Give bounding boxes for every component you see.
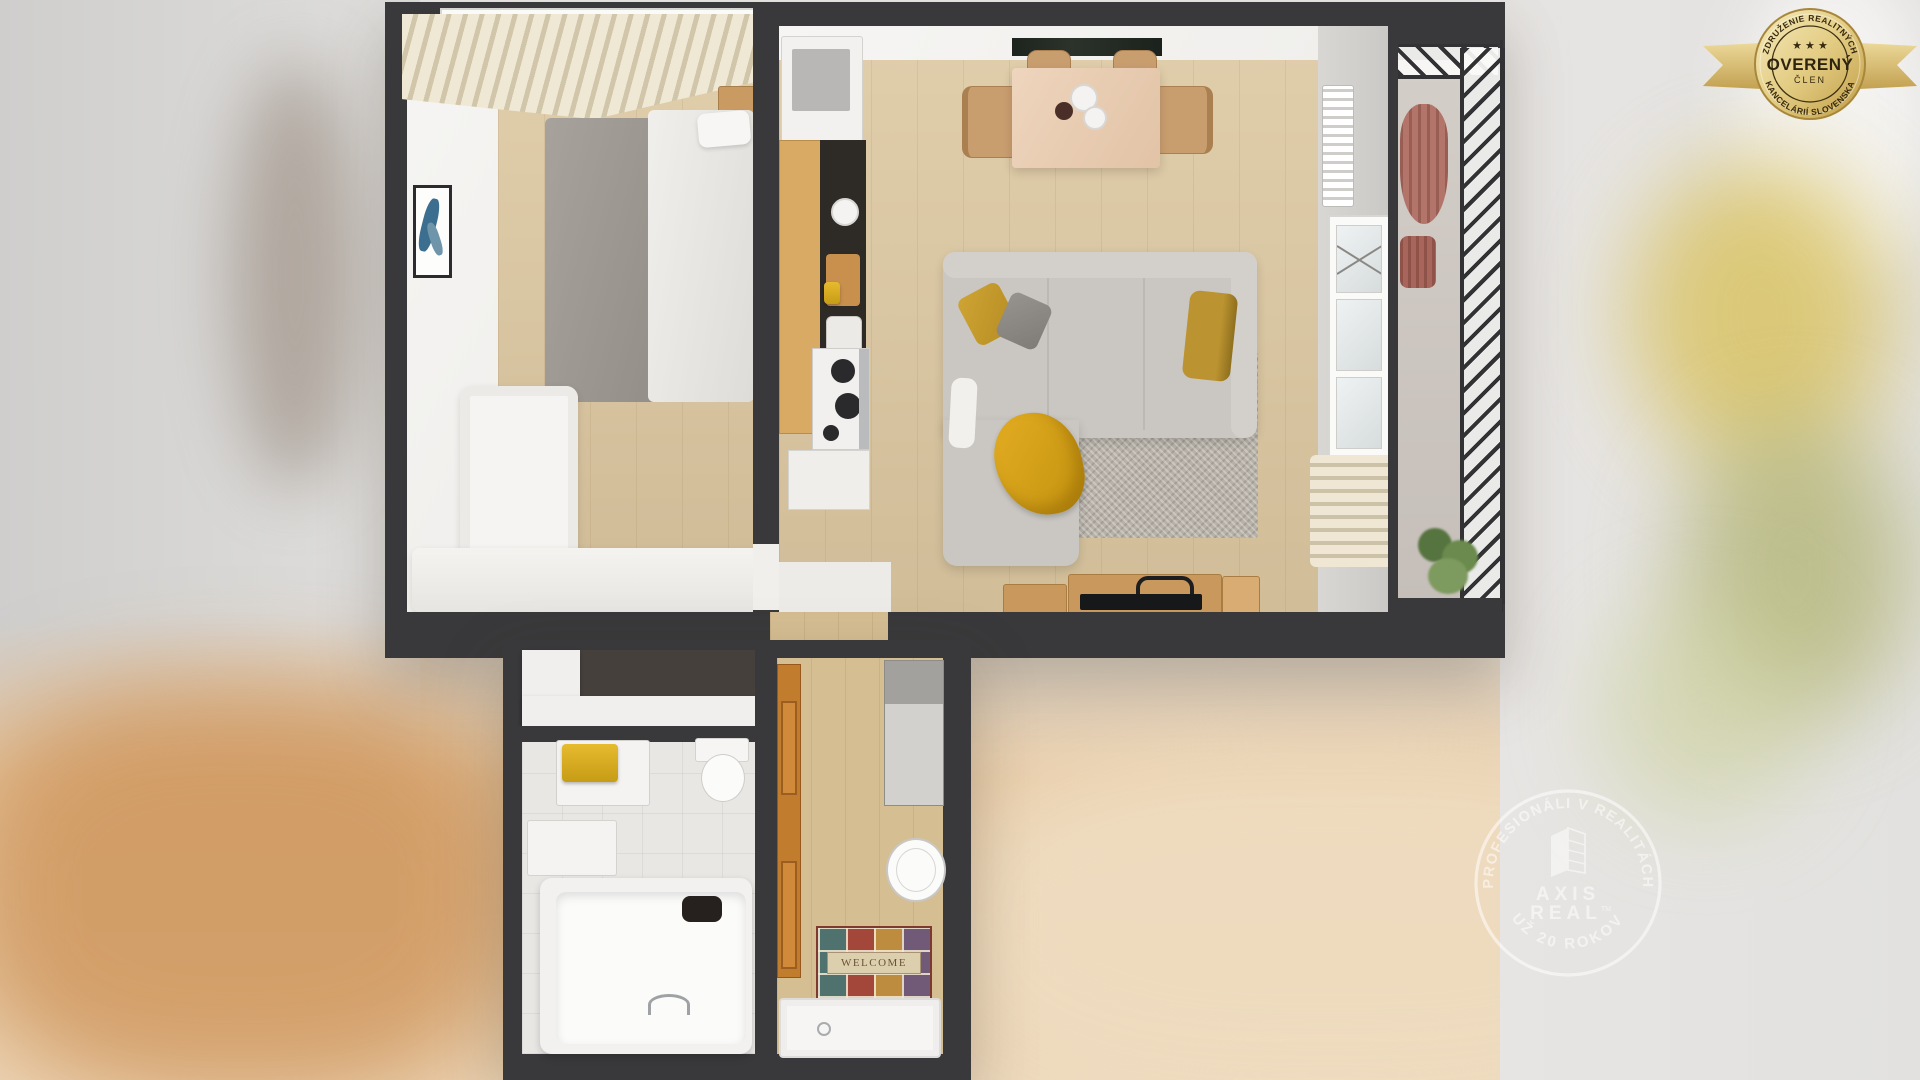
bed-duvet-gray xyxy=(545,118,659,402)
floorplan-scene: WELCOME ZDRUŽENIE REALITNÝCH ★ ★ ★ OVERE… xyxy=(0,0,1920,1080)
watermark-brand-2: REAL xyxy=(1530,903,1602,924)
washbasin xyxy=(886,838,946,902)
bed-duvet-white xyxy=(648,110,754,402)
fridge xyxy=(781,36,863,142)
balcony-rail-line xyxy=(1500,40,1503,614)
dining-chair xyxy=(1152,86,1213,154)
hall-doorway-threshold xyxy=(779,562,891,612)
wall-picture xyxy=(413,185,452,278)
closet-shelf xyxy=(522,696,755,730)
stove xyxy=(812,348,870,450)
balcony-chair xyxy=(1400,236,1436,288)
yellow-towel xyxy=(562,744,618,782)
doormat-text: WELCOME xyxy=(827,952,921,974)
balcony-railing xyxy=(1460,48,1505,604)
divider-wall xyxy=(753,2,779,614)
kitchen-towel xyxy=(824,282,840,304)
tv-bracket xyxy=(1136,576,1194,596)
badge-stars: ★ ★ ★ xyxy=(1792,40,1828,52)
watermark-brand-1: AXIS xyxy=(1536,884,1600,905)
verified-member-badge: ZDRUŽENIE REALITNÝCH ★ ★ ★ OVERENÝ ČLEN … xyxy=(1695,2,1920,128)
living-radiator xyxy=(1322,85,1354,207)
background-plant-blur xyxy=(1630,160,1890,470)
background-furniture-blur xyxy=(230,60,360,490)
doormat: WELCOME xyxy=(816,926,932,1000)
watermark-tm: TM xyxy=(1601,906,1611,913)
tv-panel xyxy=(1080,594,1202,610)
bath-hall-wall xyxy=(755,640,777,1080)
axis-real-watermark: PROFESIONÁLI V REALITÁCH AXIS REAL TM UŽ… xyxy=(1463,778,1673,988)
balcony-table xyxy=(1400,104,1448,224)
bathtub xyxy=(540,878,752,1054)
bowl xyxy=(1055,102,1073,120)
cooking-pot xyxy=(831,198,859,226)
saucer xyxy=(1083,106,1107,130)
living-window xyxy=(1328,215,1392,459)
bath-faucet xyxy=(648,994,690,1015)
badge-subtitle: ČLEN xyxy=(1794,75,1826,85)
sofa-pillow-mustard xyxy=(1182,290,1239,383)
badge-title: OVERENÝ xyxy=(1767,55,1854,74)
shower-tray xyxy=(779,998,941,1058)
bedroom-bench xyxy=(412,548,760,612)
bedroom-door-opening xyxy=(753,544,779,610)
living-curtains xyxy=(1310,455,1394,567)
sofa-pillow-white xyxy=(948,377,978,448)
kitchen-end-cabinet xyxy=(788,450,870,510)
toilet-bowl xyxy=(701,754,745,802)
potted-plant xyxy=(1428,558,1468,594)
bath-headrest xyxy=(682,896,722,922)
hall-wardrobe xyxy=(884,660,944,806)
bathroom-vanity xyxy=(527,820,617,876)
bed-pillow xyxy=(697,110,752,148)
background-floor-blob xyxy=(0,680,520,1080)
bedroom-loveseat xyxy=(460,386,578,568)
axis-real-logo-icon xyxy=(1551,828,1585,877)
hall-cabinet xyxy=(777,664,801,978)
